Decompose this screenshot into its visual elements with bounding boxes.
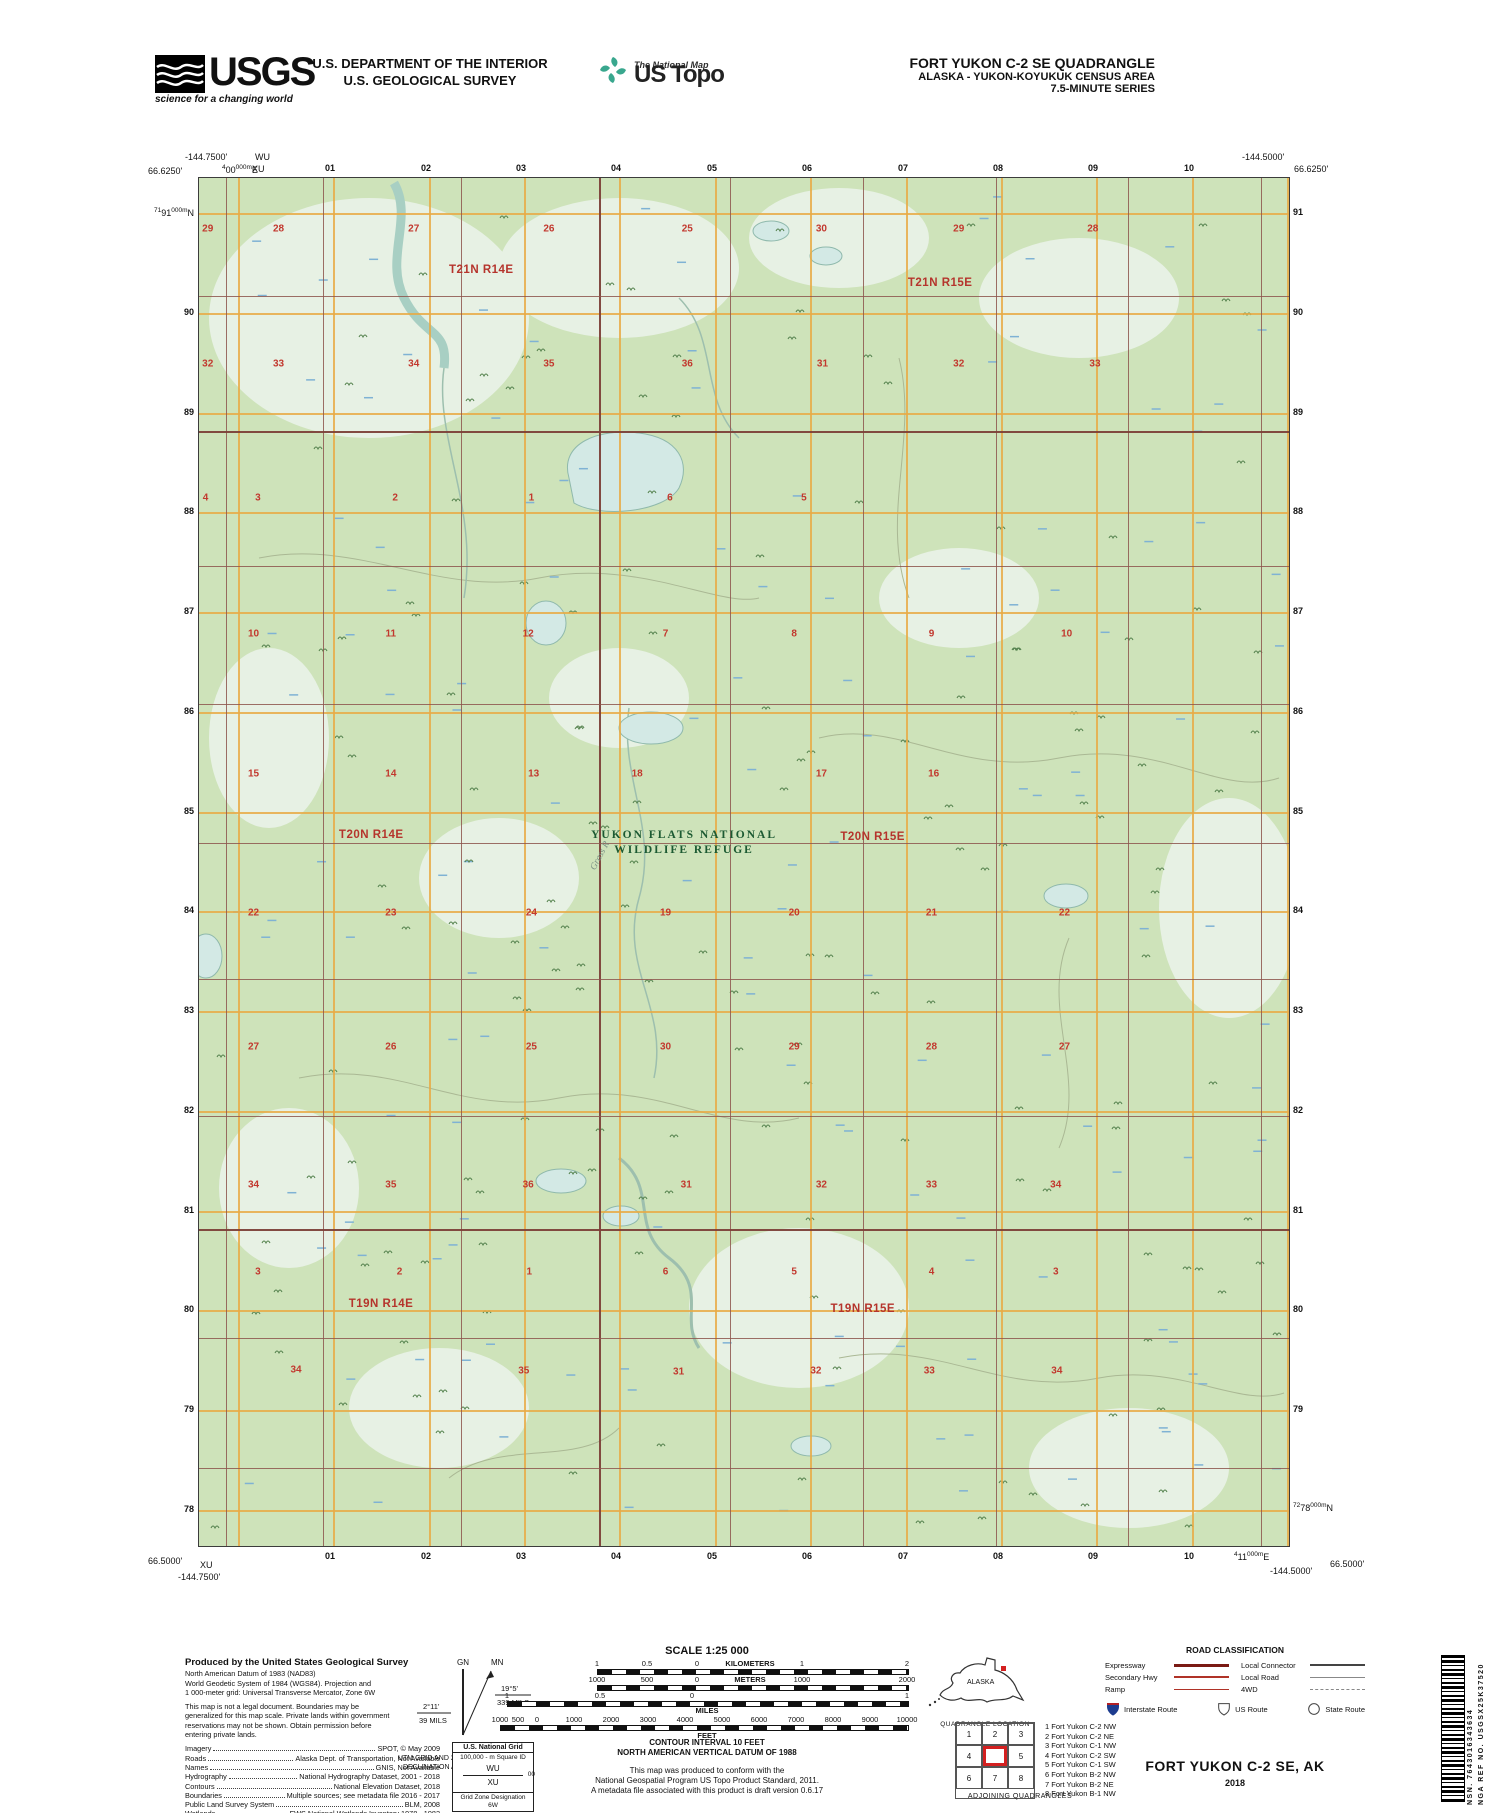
section-number: 20 bbox=[789, 907, 800, 918]
section-number: 34 bbox=[248, 1179, 259, 1190]
credits-source-row: BoundariesMultiple sources; see metadata… bbox=[185, 1791, 440, 1800]
scale-tick-label: 0 bbox=[535, 1715, 539, 1724]
quad-area: ALASKA - YUKON-KOYUKUK CENSUS AREA bbox=[735, 71, 1155, 83]
utm-grid-line-h bbox=[199, 1310, 1289, 1312]
grid-northing-left: 88 bbox=[176, 506, 194, 516]
road-class-label: 4WD bbox=[1241, 1685, 1258, 1694]
section-line-h bbox=[199, 1116, 1289, 1117]
township-range-label: T19N R14E bbox=[349, 1298, 414, 1310]
grid-northing-right: 89 bbox=[1293, 407, 1303, 417]
grid-easting-bottom: 02 bbox=[421, 1551, 431, 1561]
section-number: 3 bbox=[1053, 1267, 1059, 1278]
map-notes: CONTOUR INTERVAL 10 FEET NORTH AMERICAN … bbox=[492, 1738, 922, 1796]
section-number: 27 bbox=[408, 223, 419, 234]
road-class-label: Local Road bbox=[1241, 1673, 1279, 1682]
grid-easting-bottom: 10 bbox=[1184, 1551, 1194, 1561]
section-number: 29 bbox=[953, 223, 964, 234]
section-number: 33 bbox=[1089, 359, 1100, 370]
section-number: 33 bbox=[926, 1179, 937, 1190]
section-number: 21 bbox=[926, 907, 937, 918]
scale-title: SCALE 1:25 000 bbox=[492, 1645, 922, 1657]
scale-bars: SCALE 1:25 000 10.50KILOMETERS1210005000… bbox=[492, 1645, 922, 1745]
adjoining-caption: ADJOINING QUADRANGLES bbox=[935, 1793, 1105, 1800]
route-marker-label: State Route bbox=[1325, 1705, 1365, 1714]
scale-tick-label: 1 bbox=[800, 1659, 804, 1668]
utm-grid-line-h bbox=[199, 712, 1289, 714]
road-class-row: Expressway bbox=[1105, 1659, 1229, 1671]
road-class-row: Local Road bbox=[1241, 1671, 1365, 1683]
scale-tick-label: 1 bbox=[905, 1691, 909, 1700]
utm-grid-line-v bbox=[906, 178, 908, 1546]
quad-name: FORT YUKON C-2 SE QUADRANGLE bbox=[735, 55, 1155, 71]
quadrangle-location: ALASKA QUADRANGLE LOCATION bbox=[920, 1650, 1050, 1728]
grid-easting-top: 03 bbox=[516, 163, 526, 173]
section-number: 10 bbox=[1061, 628, 1072, 639]
section-line-v bbox=[461, 178, 462, 1546]
section-number: 11 bbox=[386, 628, 397, 639]
scale-tick-label: 3000 bbox=[640, 1715, 657, 1724]
section-number: 10 bbox=[248, 628, 259, 639]
section-number: 31 bbox=[673, 1367, 684, 1378]
section-number: 16 bbox=[928, 769, 939, 780]
section-number: 6 bbox=[663, 1267, 669, 1278]
utm-grid-line-h bbox=[199, 413, 1289, 415]
vertical-datum-note: NORTH AMERICAN VERTICAL DATUM OF 1988 bbox=[492, 1748, 922, 1758]
corner-lat-top-right: 66.6250' bbox=[1294, 164, 1328, 174]
scale-tick-label: 1000 bbox=[794, 1675, 811, 1684]
township-line bbox=[199, 1229, 1289, 1231]
grid-northing-right: 90 bbox=[1293, 307, 1303, 317]
section-number: 9 bbox=[929, 628, 935, 639]
map-terrain-art bbox=[199, 178, 1289, 1546]
dotted-leader bbox=[217, 1788, 332, 1789]
adjoining-cell: 2 bbox=[982, 1723, 1008, 1745]
road-classification-legend: ROAD CLASSIFICATION ExpresswaySecondary … bbox=[1105, 1645, 1365, 1717]
source-label: Imagery bbox=[185, 1744, 211, 1753]
grid-northing-right: 85 bbox=[1293, 806, 1303, 816]
section-number: 24 bbox=[526, 907, 537, 918]
adjoining-cell: 1 bbox=[956, 1723, 982, 1745]
grid-northing-right: 83 bbox=[1293, 1005, 1303, 1015]
section-number: 36 bbox=[523, 1179, 534, 1190]
grid-northing-left: 89 bbox=[176, 407, 194, 417]
grid-easting-top: 07 bbox=[898, 163, 908, 173]
alaska-map-icon: ALASKA bbox=[925, 1650, 1045, 1714]
nsn-number: NSN. 7643016343634 bbox=[1467, 1655, 1474, 1805]
section-number: 32 bbox=[816, 1179, 827, 1190]
road-class-label: Local Connector bbox=[1241, 1661, 1296, 1670]
source-label: Boundaries bbox=[185, 1791, 222, 1800]
section-number: 12 bbox=[523, 628, 534, 639]
utm-northing-label-right: 7278000mN bbox=[1293, 1502, 1333, 1513]
grid-easting-bottom: 01 bbox=[325, 1551, 335, 1561]
utm-grid-line-v bbox=[238, 178, 240, 1546]
source-value: FWS National Wetlands Inventory 1978 - 1… bbox=[290, 1809, 440, 1813]
scale-tick-label: 500 bbox=[641, 1675, 654, 1684]
road-class-row: Secondary Hwy bbox=[1105, 1671, 1229, 1683]
grid-northing-right: 91 bbox=[1293, 207, 1303, 217]
scale-tick-label: 1000 bbox=[566, 1715, 583, 1724]
road-class-label: Secondary Hwy bbox=[1105, 1673, 1158, 1682]
credits-source-row: Public Land Survey SystemBLM, 2008 bbox=[185, 1800, 440, 1809]
section-number: 5 bbox=[801, 493, 807, 504]
section-number: 15 bbox=[248, 769, 259, 780]
sheet-year: 2018 bbox=[1095, 1778, 1375, 1788]
source-label: Roads bbox=[185, 1754, 206, 1763]
section-number: 13 bbox=[528, 769, 539, 780]
adjoining-quadrangles: 12345678 1 Fort Yukon C-2 NW2 Fort Yukon… bbox=[955, 1722, 1116, 1799]
scale-unit-label: METERS bbox=[734, 1675, 765, 1684]
route-marker-legend: US Route bbox=[1216, 1701, 1268, 1717]
section-line-h bbox=[199, 296, 1289, 297]
utm-grid-line-h bbox=[199, 1111, 1289, 1113]
scale-tick-label: 2000 bbox=[899, 1675, 916, 1684]
svg-text:GN: GN bbox=[457, 1658, 469, 1667]
adjoining-cell: 8 bbox=[1008, 1767, 1034, 1789]
grid-northing-right: 87 bbox=[1293, 606, 1303, 616]
section-number: 27 bbox=[248, 1041, 259, 1052]
section-line-v bbox=[323, 178, 324, 1546]
usng-zone: 6W bbox=[453, 1802, 533, 1811]
interstate-shield-icon bbox=[1105, 1701, 1121, 1717]
section-number: 23 bbox=[385, 907, 396, 918]
alaska-label: ALASKA bbox=[967, 1679, 995, 1686]
scale-tick-label: 1000 bbox=[589, 1675, 606, 1684]
corner-lon-top-right: -144.5000' bbox=[1242, 152, 1284, 162]
section-number: 33 bbox=[273, 359, 284, 370]
dotted-leader bbox=[224, 1797, 285, 1798]
section-number: 22 bbox=[248, 907, 259, 918]
section-line-h bbox=[199, 1338, 1289, 1339]
utm-grid-line-h bbox=[199, 1011, 1289, 1013]
section-number: 3 bbox=[255, 493, 261, 504]
grid-northing-left: 86 bbox=[176, 706, 194, 716]
grid-northing-right: 80 bbox=[1293, 1304, 1303, 1314]
section-number: 34 bbox=[1051, 1365, 1062, 1376]
section-number: 25 bbox=[526, 1041, 537, 1052]
wildlife-refuge-label: YUKON FLATS NATIONALWILDLIFE REFUGE bbox=[591, 828, 777, 858]
section-number: 29 bbox=[789, 1041, 800, 1052]
scale-tick-label: 1000 bbox=[492, 1715, 509, 1724]
scale-tick-label: 2 bbox=[905, 1659, 909, 1668]
contour-interval-note: CONTOUR INTERVAL 10 FEET bbox=[492, 1738, 922, 1748]
grid-northing-right: 81 bbox=[1293, 1205, 1303, 1215]
us-route-shield-icon bbox=[1216, 1701, 1232, 1717]
utm-grid-line-v bbox=[429, 178, 431, 1546]
utm-grid-line-h bbox=[199, 1211, 1289, 1213]
source-value: Multiple sources; see metadata file 2016… bbox=[287, 1791, 440, 1800]
grid-northing-right: 79 bbox=[1293, 1404, 1303, 1414]
scale-tick-label: 8000 bbox=[825, 1715, 842, 1724]
standard-note-2: National Geospatial Program US Topo Prod… bbox=[492, 1776, 922, 1786]
section-number: 19 bbox=[660, 907, 671, 918]
section-number: 32 bbox=[810, 1365, 821, 1376]
corner-lon-bottom-left: -144.7500' bbox=[178, 1572, 220, 1582]
section-line-v bbox=[730, 178, 731, 1546]
grid-northing-right: 82 bbox=[1293, 1105, 1303, 1115]
grid-northing-left: 83 bbox=[176, 1005, 194, 1015]
section-number: 30 bbox=[660, 1041, 671, 1052]
route-marker-legend: Interstate Route bbox=[1105, 1701, 1177, 1717]
road-class-row: Local Connector bbox=[1241, 1659, 1365, 1671]
grid-northing-left: 79 bbox=[176, 1404, 194, 1414]
adjoining-cell-current bbox=[982, 1745, 1008, 1767]
grid-easting-bottom: 08 bbox=[993, 1551, 1003, 1561]
township-range-label: T21N R14E bbox=[449, 264, 514, 276]
adjoining-name: 1 Fort Yukon C-2 NW bbox=[1045, 1722, 1116, 1732]
grid-northing-left: 90 bbox=[176, 307, 194, 317]
scale-tick-label: 0.5 bbox=[595, 1691, 605, 1700]
credits-source-row: ContoursNational Elevation Dataset, 2018 bbox=[185, 1782, 440, 1791]
corner-lat-bottom-right: 66.5000' bbox=[1330, 1559, 1364, 1569]
route-marker-label: Interstate Route bbox=[1124, 1705, 1177, 1714]
road-class-label: Expressway bbox=[1105, 1661, 1145, 1670]
grid-northing-right: 88 bbox=[1293, 506, 1303, 516]
utm-grid-line-v bbox=[619, 178, 621, 1546]
utm-grid-line-h bbox=[199, 812, 1289, 814]
road-class-line-sample bbox=[1310, 1677, 1365, 1678]
utm-northing-label-left: 7191000mN bbox=[138, 207, 194, 218]
road-class-line-sample bbox=[1310, 1664, 1365, 1666]
source-value: National Hydrography Dataset, 2001 - 201… bbox=[299, 1772, 440, 1781]
section-number: 32 bbox=[202, 359, 213, 370]
grid-easting-top: 01 bbox=[325, 163, 335, 173]
grid-easting-bottom: 03 bbox=[516, 1551, 526, 1561]
road-class-line-sample bbox=[1310, 1689, 1365, 1690]
adjoining-cell: 6 bbox=[956, 1767, 982, 1789]
utm-grid-line-v bbox=[810, 178, 812, 1546]
scale-tick-label: 1 bbox=[595, 1659, 599, 1668]
section-number: 2 bbox=[397, 1267, 403, 1278]
section-number: 7 bbox=[663, 628, 669, 639]
township-line bbox=[199, 431, 1289, 433]
source-label: Contours bbox=[185, 1782, 215, 1791]
adjoining-name: 3 Fort Yukon C-1 NW bbox=[1045, 1741, 1116, 1751]
map-canvas[interactable]: 2928272625302928323334353631323343216510… bbox=[198, 177, 1290, 1547]
sheet-title: FORT YUKON C-2 SE, AK bbox=[1095, 1758, 1375, 1774]
scale-tick-label: 4000 bbox=[677, 1715, 694, 1724]
grid-northing-left: 82 bbox=[176, 1105, 194, 1115]
section-number: 2 bbox=[392, 493, 398, 504]
section-number: 22 bbox=[1059, 907, 1070, 918]
grid-northing-left: 78 bbox=[176, 1504, 194, 1514]
sheet-title-block: FORT YUKON C-2 SE, AK 2018 bbox=[1095, 1758, 1375, 1788]
adjoining-cell: 5 bbox=[1008, 1745, 1034, 1767]
source-label: Names bbox=[185, 1763, 208, 1772]
adjoining-grid: 12345678 bbox=[955, 1722, 1035, 1799]
grid-easting-bottom: 09 bbox=[1088, 1551, 1098, 1561]
source-value: National Elevation Dataset, 2018 bbox=[334, 1782, 440, 1791]
township-range-label: T20N R14E bbox=[339, 829, 404, 841]
grid-northing-left: 84 bbox=[176, 905, 194, 915]
section-line-h bbox=[199, 704, 1289, 705]
section-number: 26 bbox=[543, 223, 554, 234]
source-label: Hydrography bbox=[185, 1772, 227, 1781]
corner-lat-bottom-left: 66.5000' bbox=[148, 1556, 182, 1566]
grid-easting-bottom: 06 bbox=[802, 1551, 812, 1561]
quad-location-marker bbox=[1001, 1666, 1006, 1671]
section-line-h bbox=[199, 979, 1289, 980]
section-number: 1 bbox=[529, 493, 535, 504]
grid-northing-left: 85 bbox=[176, 806, 194, 816]
section-number: 27 bbox=[1059, 1041, 1070, 1052]
section-number: 35 bbox=[543, 359, 554, 370]
source-value: BLM, 2008 bbox=[405, 1800, 440, 1809]
grid-easting-top: 06 bbox=[802, 163, 812, 173]
credits-source-row: WetlandsFWS National Wetlands Inventory … bbox=[185, 1809, 440, 1813]
grid-easting-bottom: 07 bbox=[898, 1551, 908, 1561]
section-line-h bbox=[199, 1468, 1289, 1469]
ustopo-leaf-icon bbox=[598, 55, 628, 85]
scale-tick-label: 0 bbox=[695, 1675, 699, 1684]
section-number: 31 bbox=[681, 1179, 692, 1190]
section-number: 33 bbox=[924, 1365, 935, 1376]
adjoining-cell: 3 bbox=[1008, 1723, 1034, 1745]
department-heading: U.S. DEPARTMENT OF THE INTERIOR U.S. GEO… bbox=[250, 55, 610, 89]
section-number: 35 bbox=[385, 1179, 396, 1190]
dotted-leader bbox=[208, 1760, 293, 1761]
standard-note-1: This map was produced to conform with th… bbox=[492, 1766, 922, 1776]
scale-unit-label: KILOMETERS bbox=[725, 1659, 774, 1668]
standard-note-3: A metadata file associated with this pro… bbox=[492, 1786, 922, 1796]
section-number: 4 bbox=[929, 1267, 935, 1278]
section-number: 18 bbox=[632, 769, 643, 780]
section-line-v bbox=[226, 178, 227, 1546]
section-number: 5 bbox=[791, 1267, 797, 1278]
section-number: 1 bbox=[526, 1267, 532, 1278]
grid-northing-left: 80 bbox=[176, 1304, 194, 1314]
barcode bbox=[1441, 1655, 1465, 1802]
scale-tick-label: 9000 bbox=[862, 1715, 879, 1724]
quad-series: 7.5-MINUTE SERIES bbox=[735, 83, 1155, 95]
dotted-leader bbox=[210, 1769, 374, 1770]
section-number: 35 bbox=[518, 1365, 529, 1376]
road-class-row: 4WD bbox=[1241, 1683, 1365, 1695]
utm-grid-line-v bbox=[715, 178, 717, 1546]
grid-northing-left: 87 bbox=[176, 606, 194, 616]
grid-easting-bottom: 04 bbox=[611, 1551, 621, 1561]
credits-source-row: HydrographyNational Hydrography Dataset,… bbox=[185, 1772, 440, 1781]
section-number: 31 bbox=[817, 359, 828, 370]
corner-lon-bottom-right: -144.5000' bbox=[1270, 1566, 1312, 1576]
road-class-label: Ramp bbox=[1105, 1685, 1125, 1694]
utm-easting-label-bottom: 411000mE bbox=[1234, 1551, 1269, 1562]
scale-tick-label: 500 bbox=[512, 1715, 525, 1724]
section-line-v bbox=[1128, 178, 1129, 1546]
scale-miles-label: MILES bbox=[696, 1706, 719, 1715]
road-classification-title: ROAD CLASSIFICATION bbox=[1105, 1645, 1365, 1655]
section-number: 28 bbox=[926, 1041, 937, 1052]
ustopo-label: US Topo bbox=[634, 70, 724, 80]
section-number: 34 bbox=[290, 1364, 301, 1375]
section-number: 30 bbox=[816, 223, 827, 234]
dotted-leader bbox=[229, 1778, 297, 1779]
road-class-line-sample bbox=[1174, 1664, 1229, 1667]
grid-easting-top: 05 bbox=[707, 163, 717, 173]
svg-text:2°11': 2°11' bbox=[423, 1702, 440, 1711]
scale-tick-label: 7000 bbox=[788, 1715, 805, 1724]
road-class-line-sample bbox=[1174, 1676, 1229, 1678]
grid-easting-top: 04 bbox=[611, 163, 621, 173]
dept-line2: U.S. GEOLOGICAL SURVEY bbox=[250, 72, 610, 89]
grid-northing-left: 81 bbox=[176, 1205, 194, 1215]
corner-lon-top-left: -144.7500' bbox=[185, 152, 227, 162]
section-line-v bbox=[996, 178, 997, 1546]
dept-line1: U.S. DEPARTMENT OF THE INTERIOR bbox=[250, 55, 610, 72]
utm-grid-line-v bbox=[524, 178, 526, 1546]
route-marker-legend: State Route bbox=[1306, 1701, 1365, 1717]
usgs-logo-waves-icon bbox=[155, 55, 205, 93]
section-number: 26 bbox=[385, 1041, 396, 1052]
usgs-topo-sheet: USGS science for a changing world U.S. D… bbox=[0, 0, 1500, 1813]
utm-grid-line-h bbox=[199, 1410, 1289, 1412]
usgs-tagline: science for a changing world bbox=[155, 94, 293, 105]
grid-square-wu: WU bbox=[255, 152, 270, 162]
grid-easting-top: 08 bbox=[993, 163, 1003, 173]
scale-tick-label: 10000 bbox=[897, 1715, 918, 1724]
scale-tick-label: 0.5 bbox=[642, 1659, 652, 1668]
section-number: 4 bbox=[203, 493, 209, 504]
scale-tick-label: 0 bbox=[690, 1691, 694, 1700]
grid-easting-top: 09 bbox=[1088, 163, 1098, 173]
state-route-circle-icon bbox=[1306, 1701, 1322, 1717]
utm-grid-line-v bbox=[1287, 178, 1289, 1546]
grid-easting-bottom: 05 bbox=[707, 1551, 717, 1561]
scale-tick-label: 0 bbox=[695, 1659, 699, 1668]
utm-grid-line-h bbox=[199, 512, 1289, 514]
section-number: 8 bbox=[791, 628, 797, 639]
township-range-label: T20N R15E bbox=[840, 831, 905, 843]
section-number: 17 bbox=[816, 769, 827, 780]
section-number: 28 bbox=[1087, 223, 1098, 234]
section-line-v bbox=[863, 178, 864, 1546]
section-number: 36 bbox=[682, 359, 693, 370]
source-label: Wetlands bbox=[185, 1809, 215, 1813]
section-number: 34 bbox=[1050, 1179, 1061, 1190]
scale-tick-label: 6000 bbox=[751, 1715, 768, 1724]
source-label: Public Land Survey System bbox=[185, 1800, 274, 1809]
nga-ref-number: NGA REF NO. USGSX25K37520 bbox=[1478, 1655, 1485, 1805]
utm-grid-line-v bbox=[1192, 178, 1194, 1546]
section-line-v bbox=[1261, 178, 1262, 1546]
grid-northing-right: 86 bbox=[1293, 706, 1303, 716]
adjoining-cell: 4 bbox=[956, 1745, 982, 1767]
section-number: 6 bbox=[667, 493, 673, 504]
utm-grid-line-h bbox=[199, 213, 1289, 215]
section-number: 14 bbox=[385, 769, 396, 780]
section-number: 32 bbox=[953, 359, 964, 370]
township-range-label: T21N R15E bbox=[908, 277, 973, 289]
corner-lat-top-left: 66.6250' bbox=[148, 166, 182, 176]
grid-square-xu-bottom: XU bbox=[200, 1560, 213, 1570]
road-class-row: Ramp bbox=[1105, 1683, 1229, 1695]
scale-tick-label: 2000 bbox=[603, 1715, 620, 1724]
dotted-leader bbox=[276, 1806, 402, 1807]
scale-tick-label: 5000 bbox=[714, 1715, 731, 1724]
scale-tick-label: 1 bbox=[505, 1691, 509, 1700]
utm-grid-line-v bbox=[1096, 178, 1098, 1546]
adjoining-cell: 7 bbox=[982, 1767, 1008, 1789]
utm-grid-line-h bbox=[199, 612, 1289, 614]
township-range-label: T19N R15E bbox=[831, 1303, 896, 1315]
road-class-line-sample bbox=[1174, 1689, 1229, 1690]
grid-easting-top: 02 bbox=[421, 163, 431, 173]
utm-grid-line-v bbox=[1001, 178, 1003, 1546]
utm-easting-label-top: 400000mE bbox=[222, 164, 258, 175]
section-number: 25 bbox=[682, 223, 693, 234]
section-number: 34 bbox=[408, 359, 419, 370]
section-number: 3 bbox=[255, 1267, 261, 1278]
